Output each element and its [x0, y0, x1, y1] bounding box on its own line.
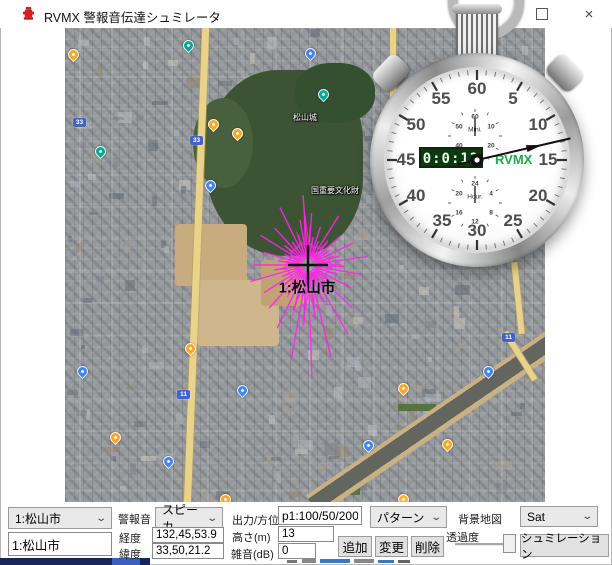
height-label: 高さ(m)	[232, 529, 271, 545]
simulate-button[interactable]: シュミレーション	[520, 534, 609, 557]
clipped-text-sliver	[354, 559, 374, 563]
clipped-text-sliver	[302, 559, 316, 563]
area-name-input[interactable]	[8, 532, 112, 556]
change-button[interactable]: 変更	[375, 536, 408, 557]
clipped-text-sliver	[287, 560, 297, 563]
site-label: 1:松山市	[279, 277, 335, 298]
opacity-slider-thumb[interactable]	[503, 534, 516, 553]
latitude-label: 緯度	[119, 546, 141, 562]
longitude-input[interactable]	[152, 527, 224, 543]
background-map-label: 背景地図	[458, 511, 502, 527]
longitude-label: 経度	[119, 530, 141, 546]
area-select-value: 1:松山市	[15, 510, 61, 527]
output-direction-label: 出力/方位	[232, 512, 279, 528]
app-icon	[21, 6, 36, 21]
clipped-text-sliver	[378, 560, 394, 563]
stopwatch-hands	[360, 0, 596, 272]
area-select[interactable]: 1:松山市 ⌄	[8, 507, 112, 529]
add-button[interactable]: 追加	[338, 536, 372, 557]
chevron-down-icon: ⌄	[95, 513, 107, 524]
clipped-text-sliver	[398, 560, 410, 563]
alarm-sound-select[interactable]: スピーカ ⌄	[155, 507, 223, 529]
background-map-select[interactable]: Sat ⌄	[520, 506, 598, 527]
alarm-sound-label: 警報音	[118, 511, 151, 527]
delete-button[interactable]: 削除	[411, 536, 444, 557]
noise-label: 雑音(dB)	[231, 546, 274, 562]
latitude-input[interactable]	[152, 543, 224, 559]
chevron-down-icon: ⌄	[581, 511, 593, 522]
window-title: RVMX 警報音伝達シュミレータ	[44, 7, 221, 26]
pattern-select-value: パターン	[377, 509, 424, 526]
background-map-value: Sat	[527, 510, 545, 524]
height-input[interactable]	[278, 526, 334, 542]
noise-input[interactable]	[278, 543, 316, 559]
output-direction-input[interactable]	[278, 506, 362, 525]
app-window: { "window": { "title": "RVMX 警報音伝達シュミレータ…	[0, 0, 612, 565]
chevron-down-icon: ⌄	[206, 513, 218, 524]
pattern-select[interactable]: パターン ⌄	[370, 506, 447, 528]
opacity-slider-track[interactable]	[455, 543, 507, 545]
chevron-down-icon: ⌄	[430, 512, 442, 523]
clipped-text-sliver	[320, 559, 350, 563]
stopwatch-widget: 60510152025303540455055601020304050Mini.…	[360, 0, 596, 272]
